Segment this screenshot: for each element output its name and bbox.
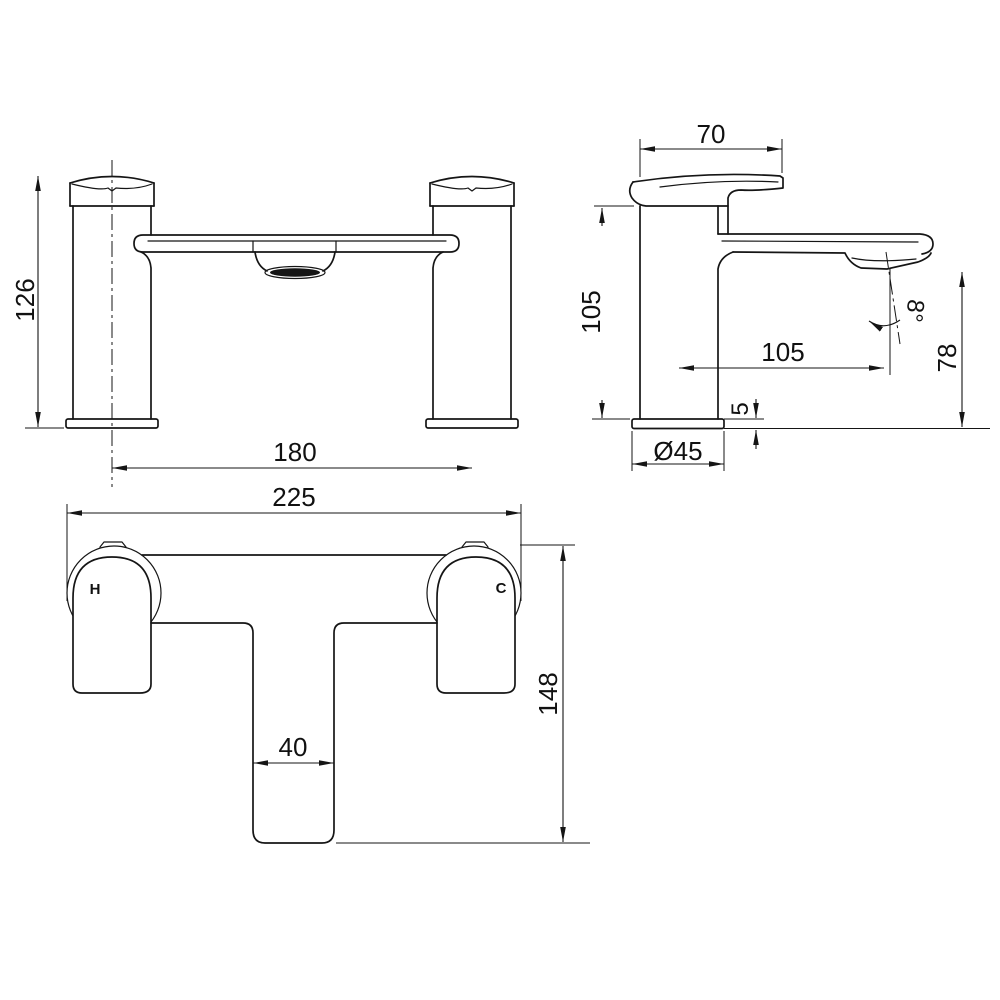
plan-view: H C 225 148 40 <box>67 482 590 843</box>
dim-label-base-diameter: Ø45 <box>653 436 702 466</box>
dim-handle-length: 70 <box>640 119 782 177</box>
side-base <box>632 419 724 429</box>
dim-label-spray-angle: 8° <box>900 298 929 324</box>
dim-spout-reach: 105 <box>679 337 884 368</box>
dim-front-spacing: 180 <box>112 437 472 468</box>
front-right-base <box>426 419 518 428</box>
dim-front-height: 126 <box>10 176 64 428</box>
front-spout-bar <box>134 235 459 279</box>
hot-handle-label: H <box>90 581 101 598</box>
technical-drawing-page: 126 180 <box>0 0 1000 1000</box>
tap-dimension-drawing: 126 180 <box>0 0 1000 1000</box>
dim-label-front-height: 126 <box>10 278 40 321</box>
dim-label-spout-reach: 105 <box>761 337 804 367</box>
side-spout <box>718 234 933 269</box>
dim-base-diameter: Ø45 <box>632 431 724 471</box>
cold-handle <box>437 557 515 693</box>
hot-handle <box>73 557 151 693</box>
spray-angle: 8° <box>869 252 929 375</box>
dim-body-height: 105 <box>576 206 634 419</box>
dim-label-spout-width: 40 <box>279 732 308 762</box>
dim-label-overall-depth: 148 <box>533 672 563 715</box>
dim-label-overall-width: 225 <box>272 482 315 512</box>
cold-handle-label: C <box>496 580 507 597</box>
front-right-pillar <box>426 177 518 429</box>
plan-body <box>142 555 446 843</box>
front-outlet-hole <box>270 268 320 276</box>
front-view: 126 180 <box>10 160 518 487</box>
side-handle <box>630 174 783 234</box>
dim-label-deck-thickness: 5 <box>727 402 754 415</box>
dim-spout-width: 40 <box>253 732 334 763</box>
dim-label-handle-length: 70 <box>697 119 726 149</box>
side-view: 8° 70 105 105 78 <box>576 119 990 471</box>
dim-label-front-spacing: 180 <box>273 437 316 467</box>
side-pillar <box>632 206 733 429</box>
dim-label-outlet-height: 78 <box>932 344 962 373</box>
dim-deck-thickness: 5 <box>724 399 764 449</box>
dim-label-body-height: 105 <box>576 290 606 333</box>
